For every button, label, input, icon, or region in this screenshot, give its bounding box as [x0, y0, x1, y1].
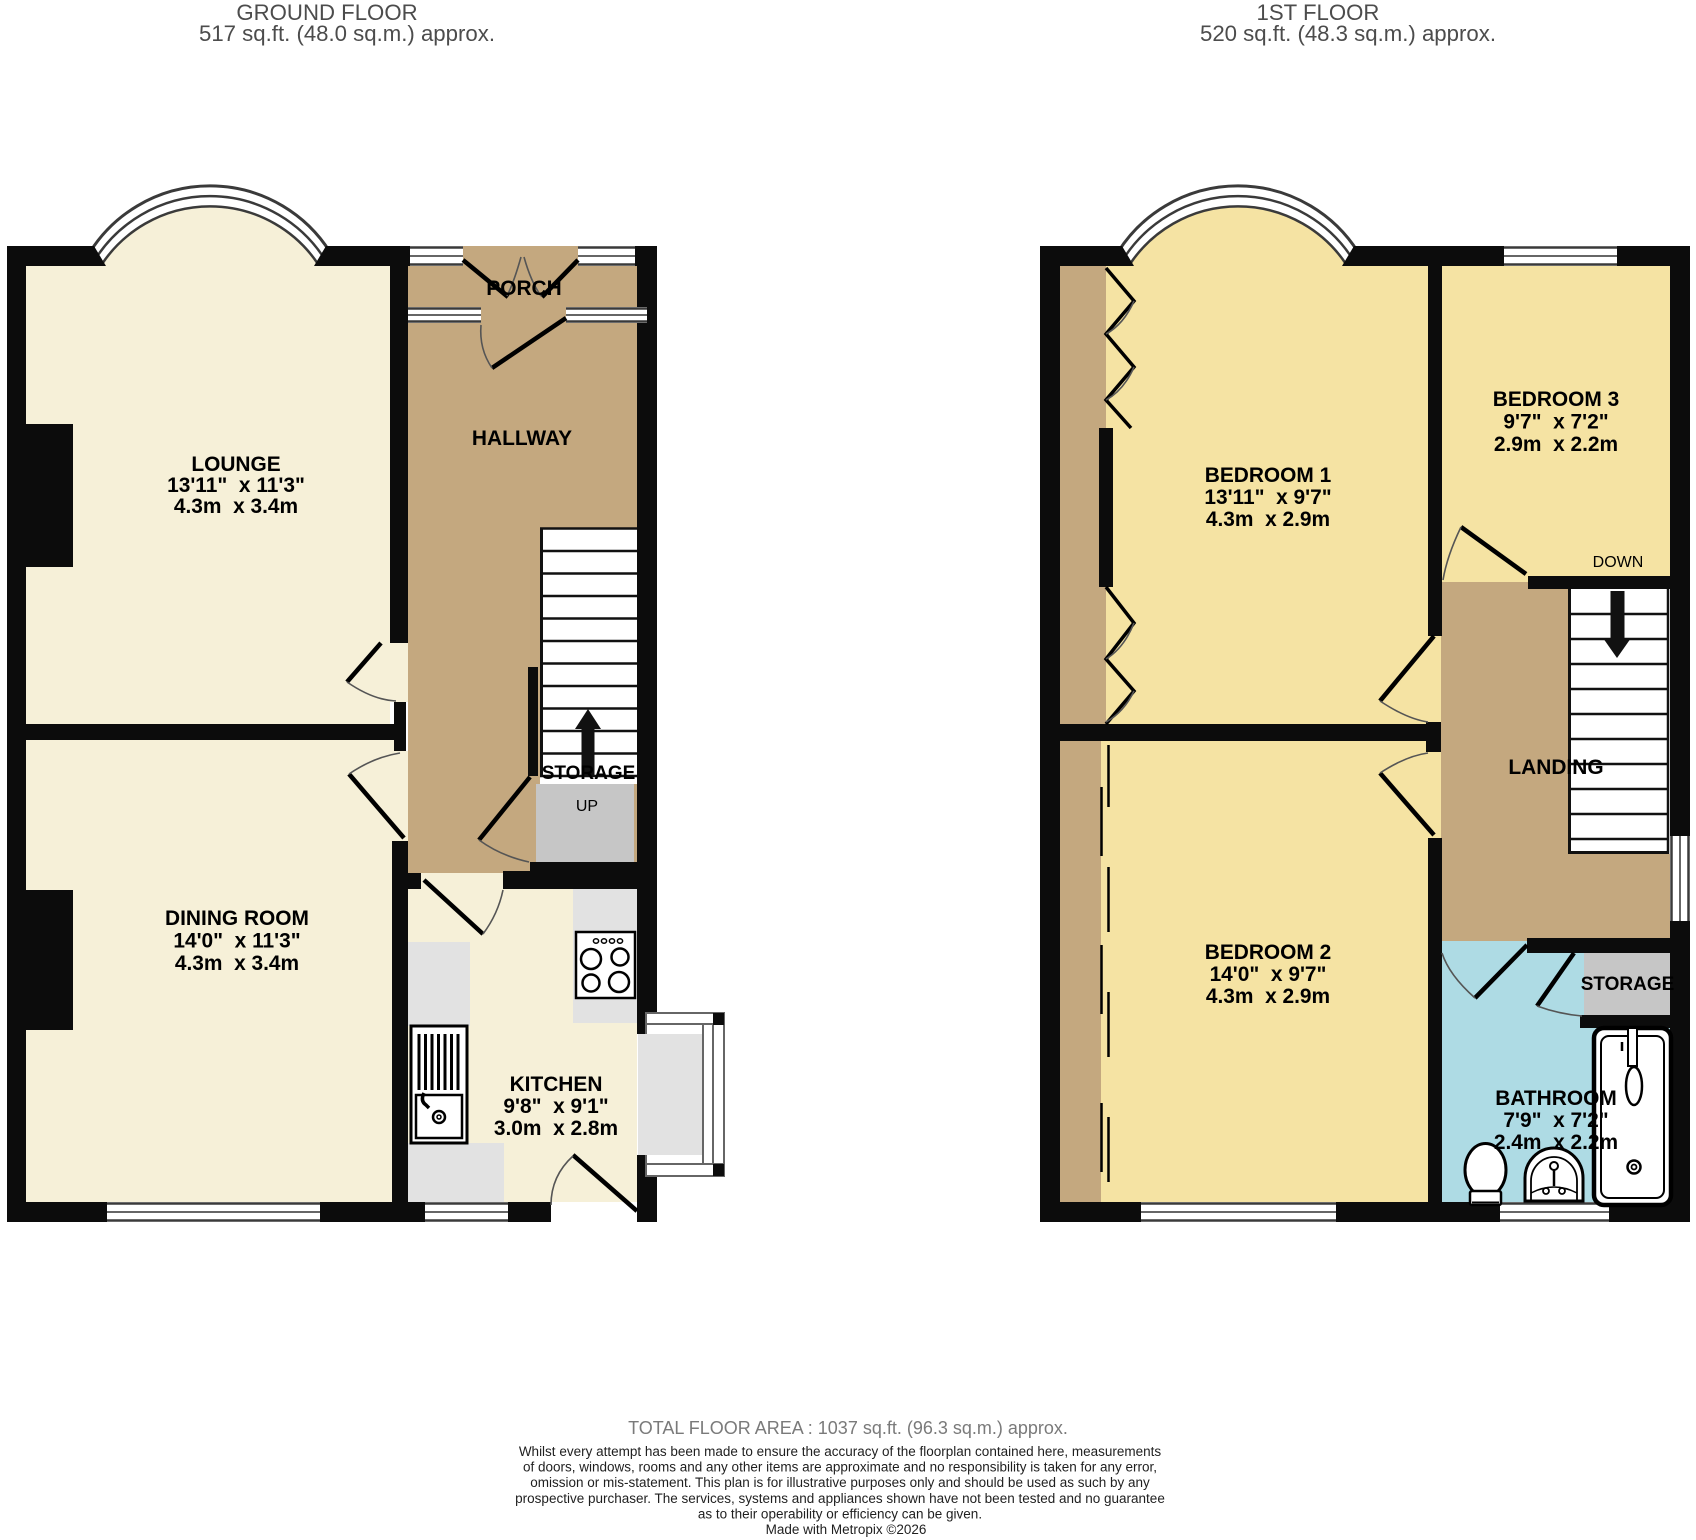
svg-text:TOTAL FLOOR AREA : 1037 sq.ft.: TOTAL FLOOR AREA : 1037 sq.ft. (96.3 sq.… — [628, 1418, 1068, 1438]
svg-text:HALLWAY: HALLWAY — [472, 427, 572, 450]
svg-text:KITCHEN: KITCHEN — [510, 1073, 603, 1096]
svg-text:14'0" x 9'7": 14'0" x 9'7" — [1210, 963, 1327, 986]
svg-text:BEDROOM 2: BEDROOM 2 — [1205, 941, 1332, 964]
svg-text:13'11" x 9'7": 13'11" x 9'7" — [1204, 486, 1331, 509]
svg-text:517 sq.ft. (48.0 sq.m.) approx: 517 sq.ft. (48.0 sq.m.) approx. — [199, 21, 495, 46]
svg-text:STORAGE: STORAGE — [542, 763, 636, 784]
svg-text:9'8" x 9'1": 9'8" x 9'1" — [503, 1095, 608, 1118]
svg-text:4.3m x 2.9m: 4.3m x 2.9m — [1206, 985, 1330, 1008]
svg-text:BATHROOM: BATHROOM — [1495, 1087, 1616, 1110]
svg-text:13'11" x 11'3": 13'11" x 11'3" — [167, 474, 305, 497]
svg-text:DOWN: DOWN — [1593, 554, 1644, 571]
svg-text:7'9" x 7'2": 7'9" x 7'2" — [1503, 1109, 1608, 1132]
svg-text:DINING ROOM: DINING ROOM — [165, 907, 309, 930]
svg-text:4.3m x 3.4m: 4.3m x 3.4m — [174, 495, 298, 518]
svg-text:BEDROOM 3: BEDROOM 3 — [1493, 388, 1620, 411]
svg-text:520 sq.ft. (48.3 sq.m.) approx: 520 sq.ft. (48.3 sq.m.) approx. — [1200, 21, 1496, 46]
svg-text:LOUNGE: LOUNGE — [191, 453, 280, 476]
svg-text:PORCH: PORCH — [486, 277, 561, 300]
svg-text:STORAGE: STORAGE — [1581, 974, 1675, 995]
svg-text:LANDING: LANDING — [1508, 756, 1603, 779]
svg-text:Made with Metropix ©2026: Made with Metropix ©2026 — [766, 1522, 927, 1537]
svg-text:BEDROOM 1: BEDROOM 1 — [1205, 464, 1332, 487]
svg-text:Whilst every attempt has been: Whilst every attempt has been made to en… — [519, 1444, 1162, 1459]
svg-text:4.3m x 3.4m: 4.3m x 3.4m — [175, 952, 299, 975]
svg-text:omission or mis-statement. Thi: omission or mis-statement. This plan is … — [530, 1475, 1150, 1490]
svg-text:2.4m x 2.2m: 2.4m x 2.2m — [1494, 1131, 1618, 1154]
svg-text:3.0m x 2.8m: 3.0m x 2.8m — [494, 1117, 618, 1140]
svg-text:of doors, windows, rooms and a: of doors, windows, rooms and any other i… — [523, 1460, 1157, 1475]
svg-text:2.9m x 2.2m: 2.9m x 2.2m — [1494, 433, 1618, 456]
svg-text:9'7" x 7'2": 9'7" x 7'2" — [1503, 411, 1608, 434]
svg-text:4.3m x 2.9m: 4.3m x 2.9m — [1206, 508, 1330, 531]
svg-text:as to their operability or eff: as to their operability or efficiency ca… — [698, 1506, 982, 1521]
svg-text:UP: UP — [576, 798, 598, 815]
svg-text:prospective purchaser. The ser: prospective purchaser. The services, sys… — [515, 1491, 1165, 1506]
svg-text:14'0" x 11'3": 14'0" x 11'3" — [173, 930, 300, 953]
